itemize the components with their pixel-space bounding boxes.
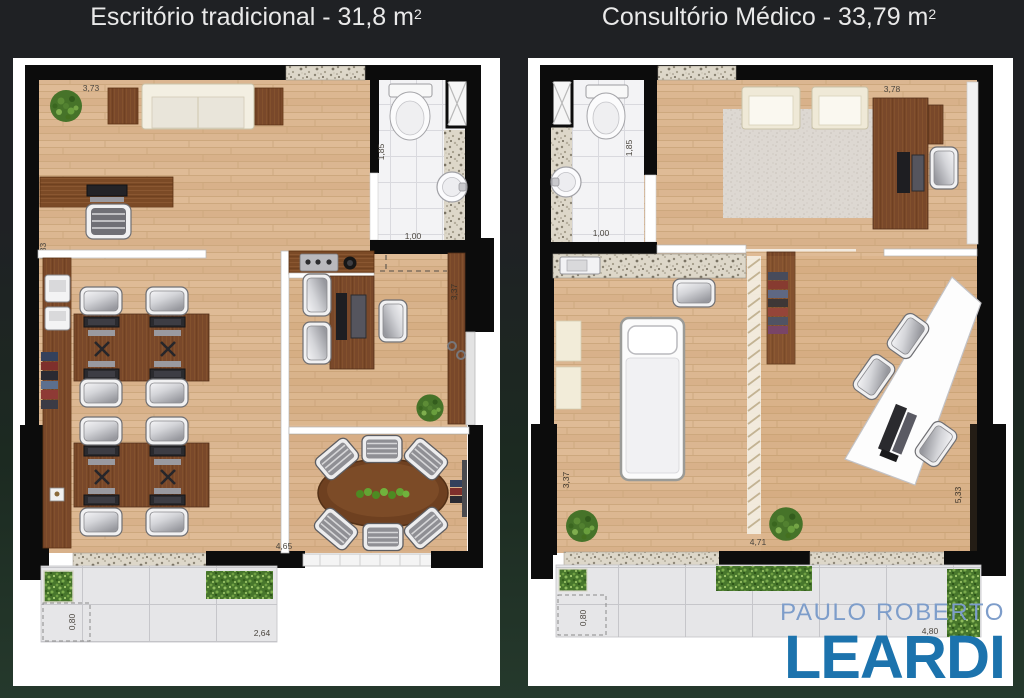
svg-text:2,64: 2,64 [254, 628, 271, 638]
svg-text:1,00: 1,00 [405, 231, 422, 241]
svg-text:1,00: 1,00 [593, 228, 610, 238]
svg-text:3,37: 3,37 [449, 283, 459, 300]
svg-text:1,85: 1,85 [376, 143, 386, 160]
svg-text:4,71: 4,71 [750, 537, 767, 547]
svg-text:0,80: 0,80 [67, 613, 77, 630]
svg-text:3,73: 3,73 [83, 83, 100, 93]
svg-text:5,33: 5,33 [953, 486, 963, 503]
svg-text:0,80: 0,80 [578, 609, 588, 626]
svg-text:1,85: 1,85 [624, 139, 634, 156]
svg-text:3,37: 3,37 [561, 471, 571, 488]
svg-text:3,78: 3,78 [884, 84, 901, 94]
